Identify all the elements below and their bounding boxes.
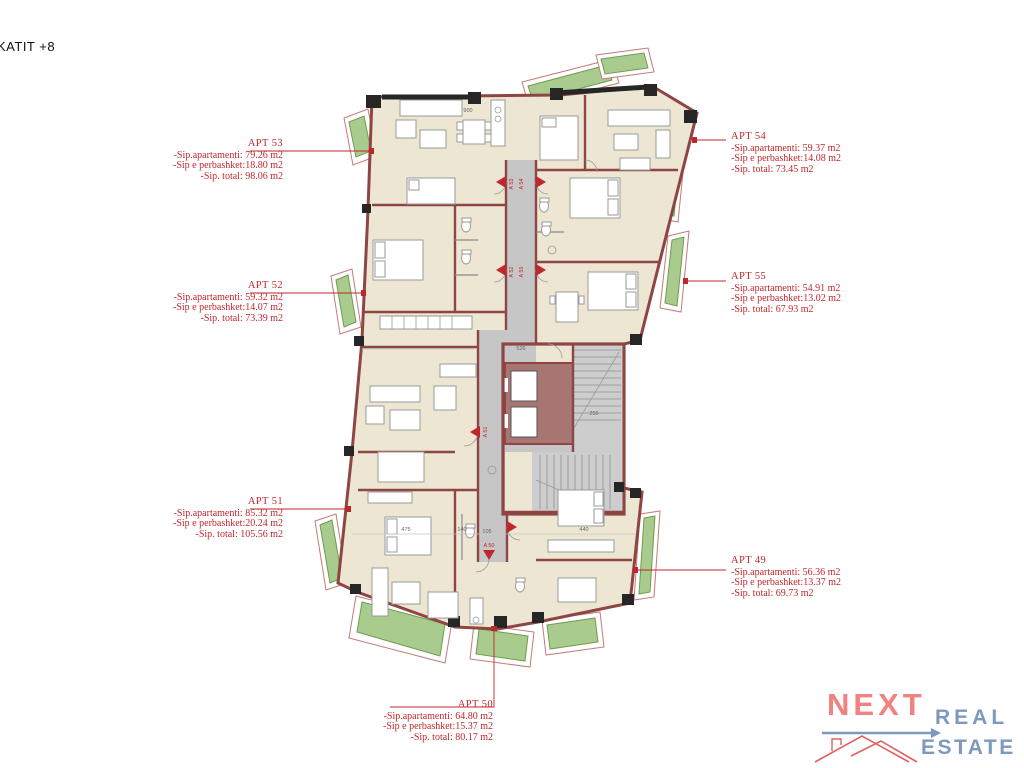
apartment-area-line: -Sip e perbashket:18.80 m2 [163, 161, 283, 172]
apartment-area-line: -Sip. total: 73.39 m2 [163, 314, 283, 325]
logo-estate-text: ESTATE [921, 736, 1016, 760]
floor-plan-page: KATIT +8 [0, 0, 1024, 768]
apartment-name: APT 50 [375, 700, 493, 711]
apartment-area-line: -Sip. total: 67.93 m2 [731, 305, 876, 316]
apartment-label-apt-50: APT 50 -Sip.apartamenti: 64.80 m2 -Sip e… [375, 700, 493, 743]
dimension-label: 900 [463, 108, 472, 114]
apartment-area-line: -Sip e perbashket:13.37 m2 [731, 578, 876, 589]
floor-plan-svg: A 53 A 54 A 52 A 55 A 51 A 50 900 526 25… [0, 0, 1024, 768]
balcony [331, 269, 361, 334]
apartment-area-line: -Sip e perbashket:14.08 m2 [731, 154, 876, 165]
apartment-name: APT 51 [163, 497, 283, 508]
apartment-name: APT 52 [163, 281, 283, 292]
logo-real-text: REAL [935, 706, 1008, 730]
apartment-area-line: -Sip e perbashket:15.37 m2 [375, 722, 493, 733]
apartment-area-line: -Sip e perbashket:20.24 m2 [163, 519, 283, 530]
apartment-area-line: -Sip. total: 98.06 m2 [163, 172, 283, 183]
next-real-estate-logo: NEXT REAL ESTATE [813, 686, 1023, 766]
apartment-marker: A 52 [509, 266, 515, 277]
apartment-label-apt-55: APT 55 -Sip.apartamenti: 54.91 m2 -Sip e… [728, 272, 876, 315]
logo-roof-icon [815, 736, 917, 762]
apartment-name: APT 49 [731, 556, 876, 567]
apartment-marker: A 53 [509, 178, 515, 189]
dimension-label: 440 [579, 527, 588, 533]
dimension-label: 105 [482, 529, 491, 535]
apartment-area-line: -Sip. total: 69.73 m2 [731, 589, 876, 600]
dimension-label: 475 [401, 527, 410, 533]
apartment-label-apt-52: APT 52 -Sip.apartamenti: 59.32 m2 -Sip e… [163, 281, 283, 324]
balcony [596, 48, 654, 79]
apartment-marker: A 55 [519, 266, 525, 277]
dimension-label: 256 [589, 411, 598, 417]
apartment-label-apt-53: APT 53 -Sip.apartamenti: 79.26 m2 -Sip e… [163, 139, 283, 182]
logo-next-text: NEXT [827, 687, 926, 723]
balcony [470, 624, 534, 667]
apartment-label-apt-51: APT 51 -Sip.apartamenti: 85.32 m2 -Sip e… [163, 497, 283, 540]
apartment-label-apt-54: APT 54 -Sip.apartamenti: 59.37 m2 -Sip e… [728, 132, 876, 175]
elevator-cabin [511, 407, 537, 437]
apartment-name: APT 55 [731, 272, 876, 283]
apartment-name: APT 53 [163, 139, 283, 150]
apartment-area-line: -Sip. total: 73.45 m2 [731, 165, 876, 176]
apartment-area-line: -Sip e perbashket:14.07 m2 [163, 303, 283, 314]
dimension-label: 140 [457, 527, 466, 533]
apartment-marker: A 54 [519, 178, 525, 189]
apartment-label-apt-49: APT 49 -Sip.apartamenti: 56.36 m2 -Sip e… [728, 556, 876, 599]
apartment-area-line: -Sip. total: 80.17 m2 [375, 733, 493, 744]
apartment-marker: A 50 [483, 543, 494, 549]
apartment-area-line: -Sip e perbashket:13.02 m2 [731, 294, 876, 305]
apartment-area-line: -Sip. total: 105.56 m2 [163, 530, 283, 541]
apartment-marker: A 51 [483, 426, 489, 437]
dimension-label: 526 [516, 346, 525, 352]
elevator-cabin [511, 371, 537, 401]
apartment-name: APT 54 [731, 132, 876, 143]
